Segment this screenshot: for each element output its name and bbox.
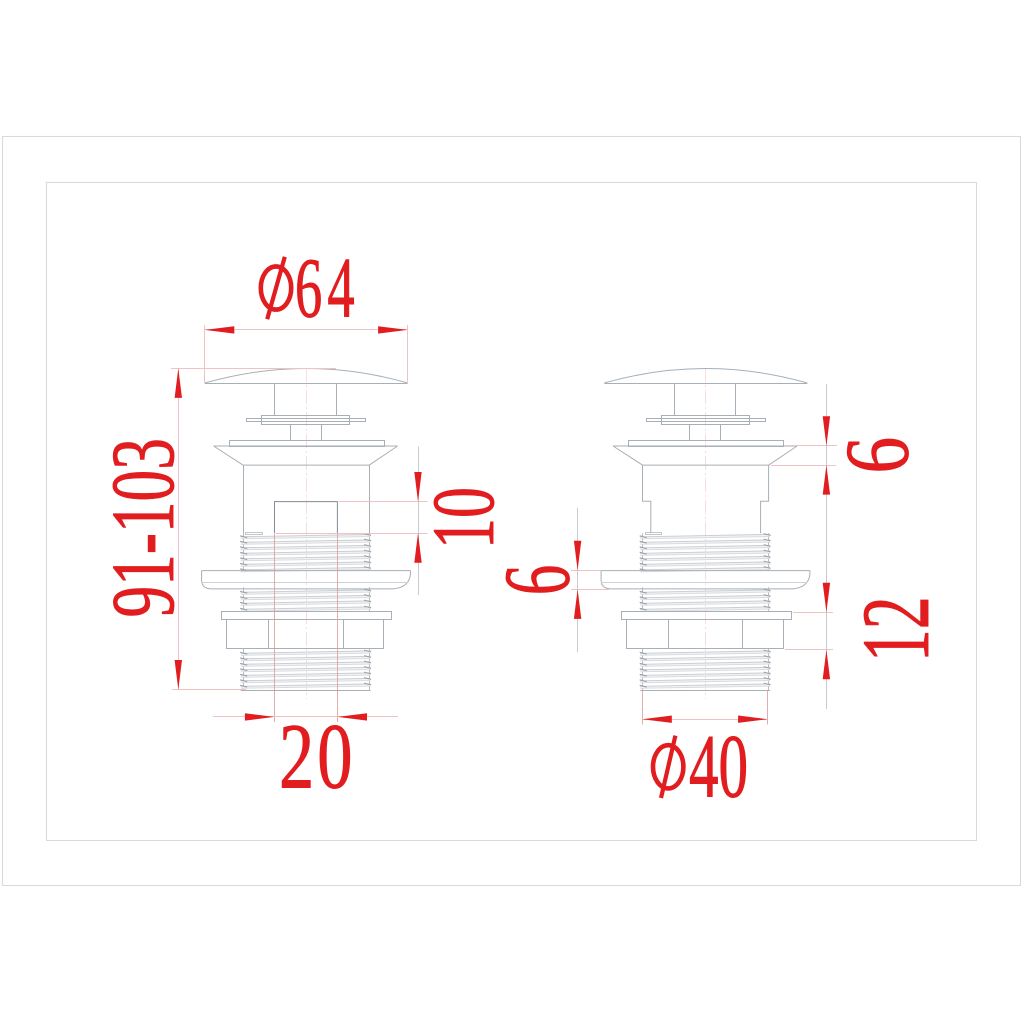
svg-text:40: 40 (689, 717, 748, 816)
svg-text:10: 10 (413, 487, 513, 549)
svg-text:6: 6 (826, 437, 927, 474)
svg-text:6: 6 (485, 565, 590, 595)
svg-text:20: 20 (279, 704, 356, 808)
svg-text:91-103: 91-103 (93, 438, 193, 617)
svg-text:64: 64 (295, 240, 360, 336)
svg-text:12: 12 (843, 596, 949, 662)
